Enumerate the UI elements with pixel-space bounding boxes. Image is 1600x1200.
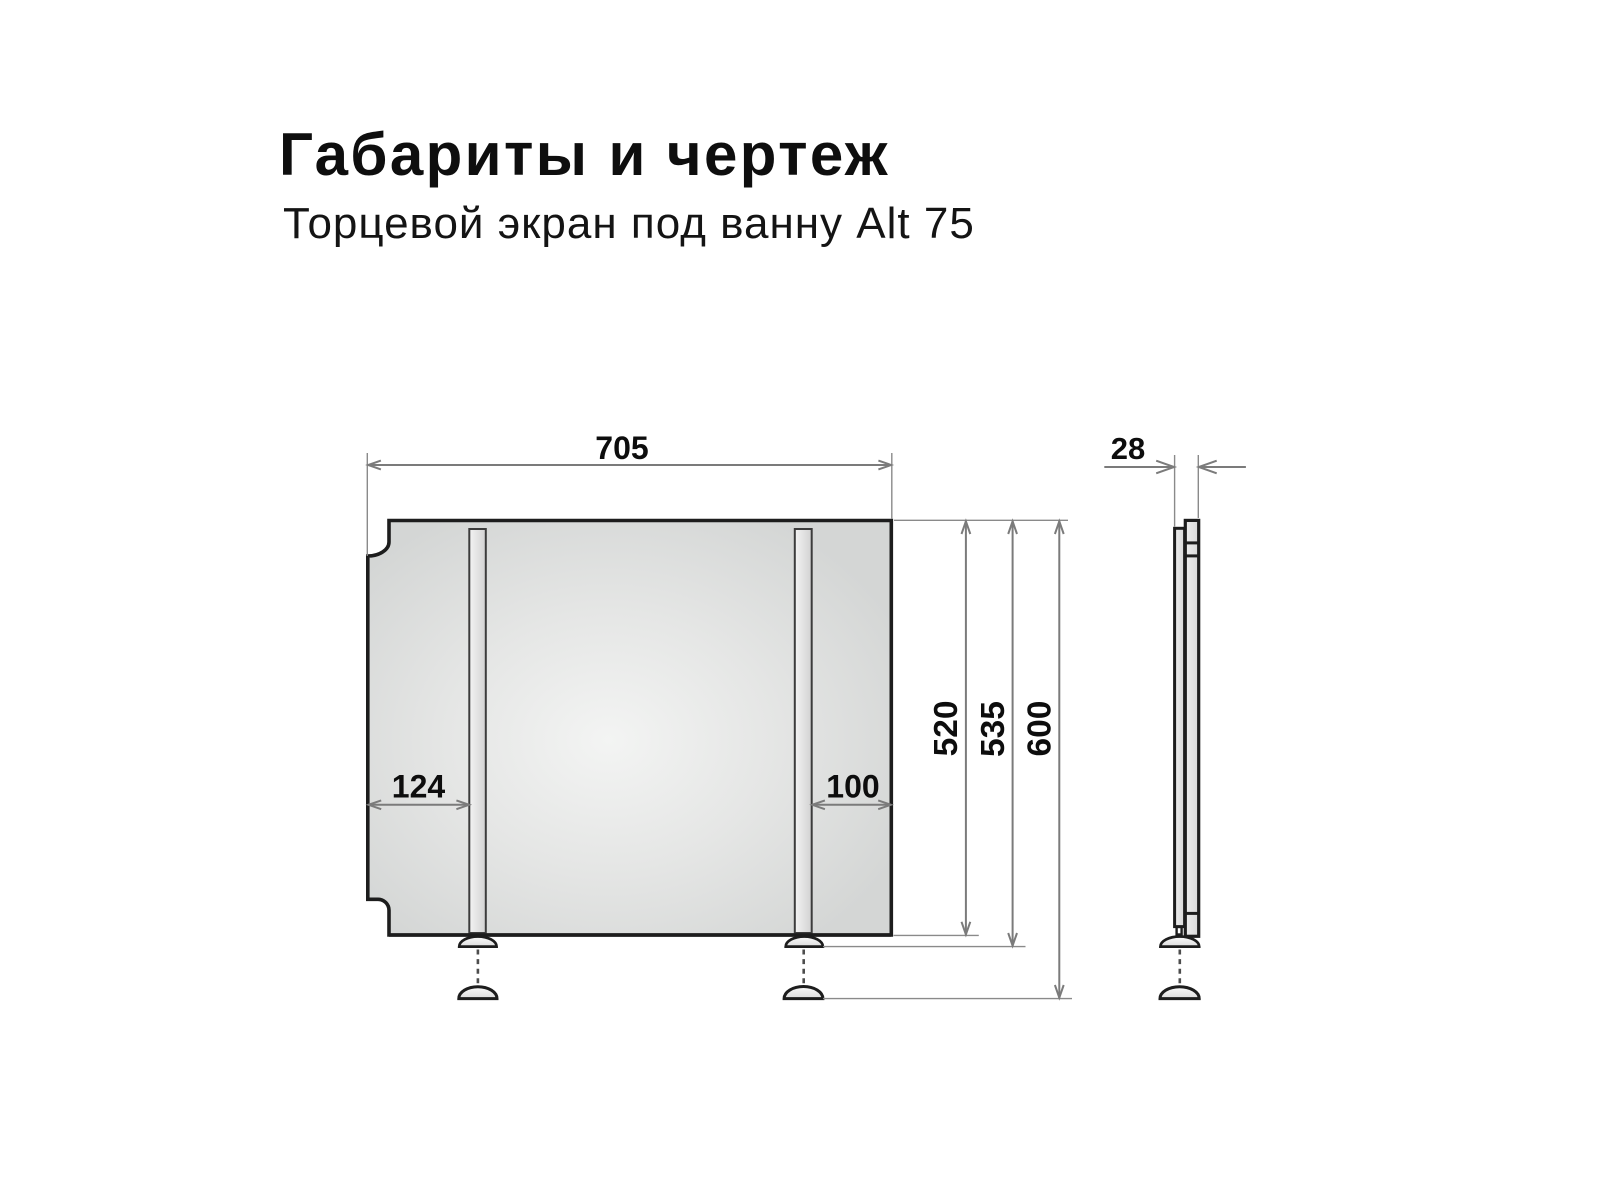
svg-text:100: 100 [826, 769, 879, 805]
svg-text:705: 705 [595, 430, 648, 466]
svg-text:520: 520 [928, 700, 965, 756]
svg-text:Торцевой экран под ванну Alt 7: Торцевой экран под ванну Alt 75 [283, 199, 975, 248]
svg-text:28: 28 [1111, 431, 1145, 466]
svg-text:124: 124 [392, 769, 446, 805]
svg-text:600: 600 [1022, 701, 1059, 757]
svg-text:Габариты и чертеж: Габариты и чертеж [279, 121, 890, 188]
svg-text:535: 535 [975, 701, 1012, 757]
